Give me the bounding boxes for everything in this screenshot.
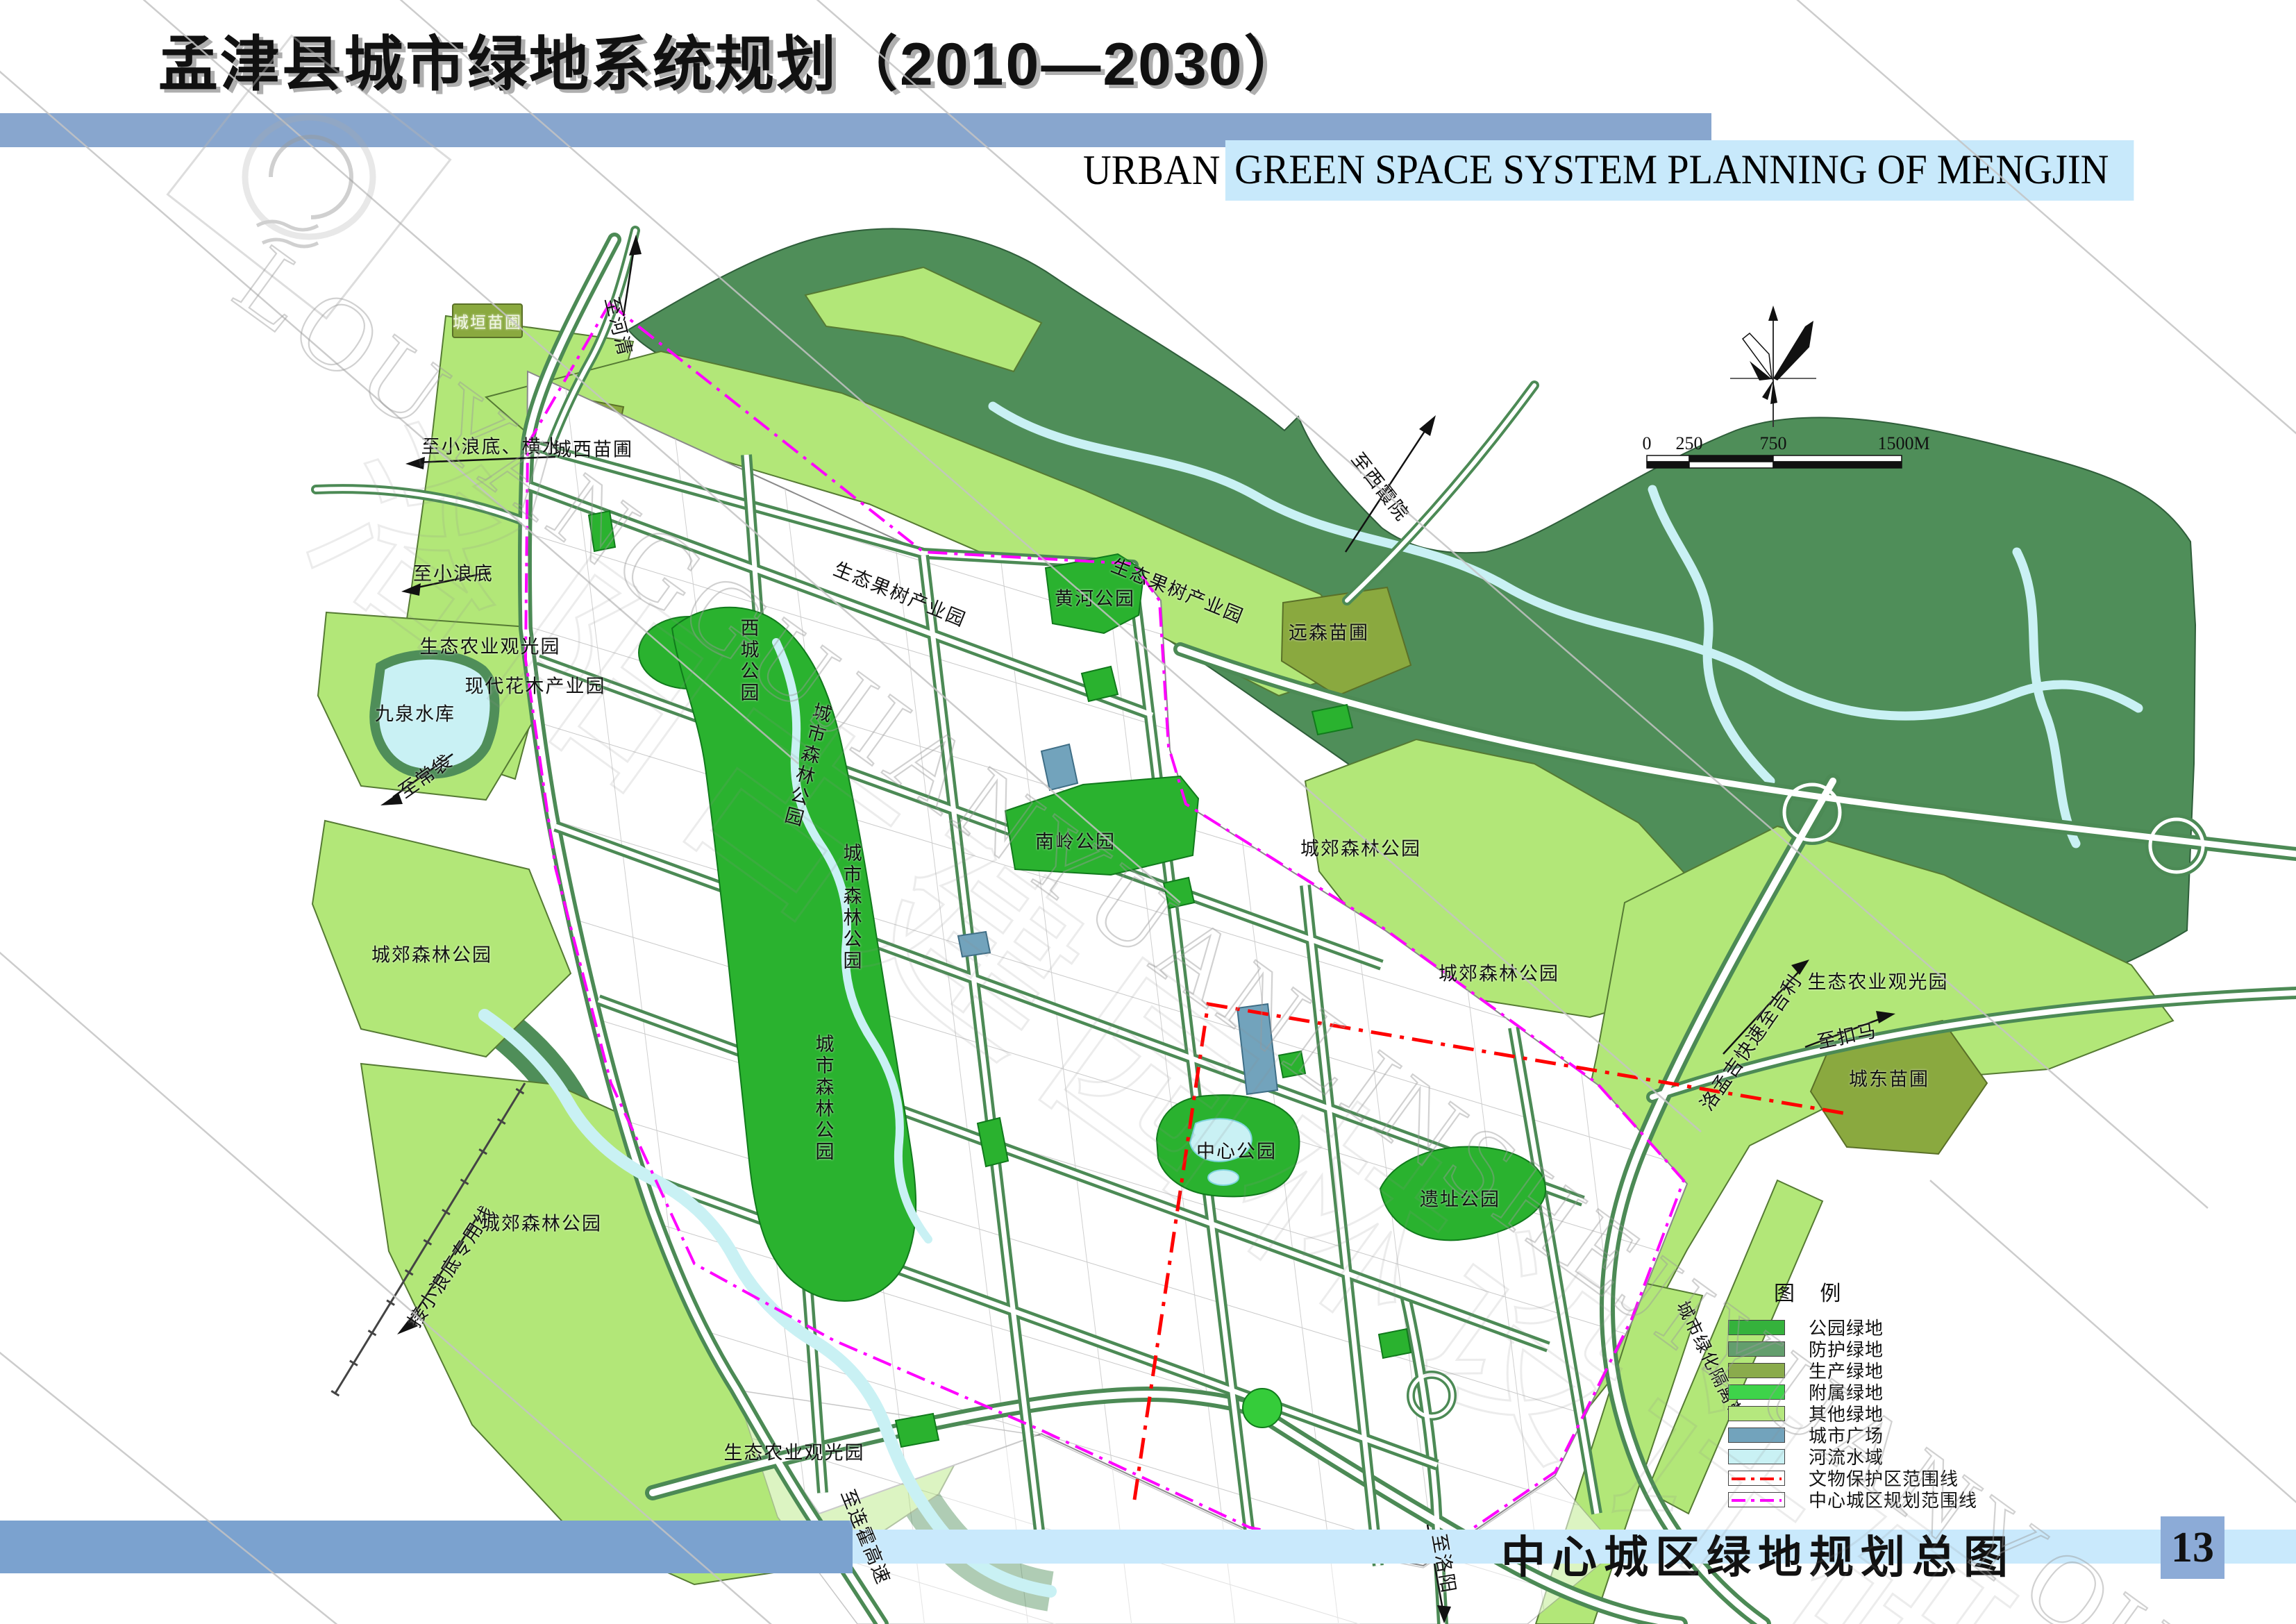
legend-swatch [1728, 1492, 1785, 1507]
sheet-title: 孟津县城市绿地系统规划（2010—2030） [158, 15, 1306, 102]
legend-swatch [1728, 1341, 1785, 1357]
legend-swatch [1728, 1471, 1785, 1486]
legend-item: 防护绿地 [1728, 1338, 1977, 1359]
legend-title: 图 例 [1774, 1276, 1977, 1307]
subtitle-prefix: URBAN [1083, 147, 1225, 194]
legend-item: 河流水域 [1728, 1446, 1977, 1467]
legend-item: 文物保护区范围线 [1728, 1467, 1977, 1489]
legend-swatch [1728, 1428, 1785, 1443]
legend-item: 生产绿地 [1728, 1359, 1977, 1381]
legend-item: 其他绿地 [1728, 1403, 1977, 1424]
north-arrow [1730, 305, 1816, 427]
legend-item: 附属绿地 [1728, 1381, 1977, 1403]
scale-bar [1647, 455, 1902, 468]
footer-accent-bar [0, 1521, 853, 1573]
page-number-badge: 13 [2161, 1516, 2224, 1579]
scalebar-tick-label: 250 [1676, 433, 1703, 454]
scalebar-tick-label: 0 [1643, 433, 1652, 454]
legend-item: 中心城区规划范围线 [1728, 1489, 1977, 1510]
footer-caption: 中心城区绿地规划总图 [1501, 1522, 2015, 1586]
legend-item: 公园绿地 [1728, 1316, 1977, 1338]
scalebar-tick-label: 750 [1760, 433, 1787, 454]
sheet-subtitle: URBAN GREEN SPACE SYSTEM PLANNING OF MEN… [1083, 143, 2134, 197]
legend-swatch [1728, 1406, 1785, 1421]
legend-item: 城市广场 [1728, 1424, 1977, 1446]
scalebar-labels: 02507501500M [0, 433, 2296, 454]
legend-items: 公园绿地防护绿地生产绿地附属绿地其他绿地城市广场河流水域文物保护区范围线中心城区… [1728, 1316, 1977, 1510]
scalebar-tick-label: 1500M [1877, 433, 1929, 454]
map-legend: 图 例 公园绿地防护绿地生产绿地附属绿地其他绿地城市广场河流水域文物保护区范围线… [1728, 1276, 1977, 1510]
legend-swatch [1728, 1384, 1785, 1400]
plan-sheet: { "header": { "title_zh": "孟津县城市绿地系统规划（2… [0, 0, 2296, 1624]
page-number: 13 [2171, 1523, 2214, 1573]
legend-swatch [1728, 1449, 1785, 1464]
legend-item-label: 中心城区规划范围线 [1809, 1487, 1977, 1512]
subtitle-highlight: GREEN SPACE SYSTEM PLANNING OF MENGJIN [1225, 140, 2134, 201]
legend-swatch [1728, 1320, 1785, 1335]
legend-swatch [1728, 1363, 1785, 1378]
